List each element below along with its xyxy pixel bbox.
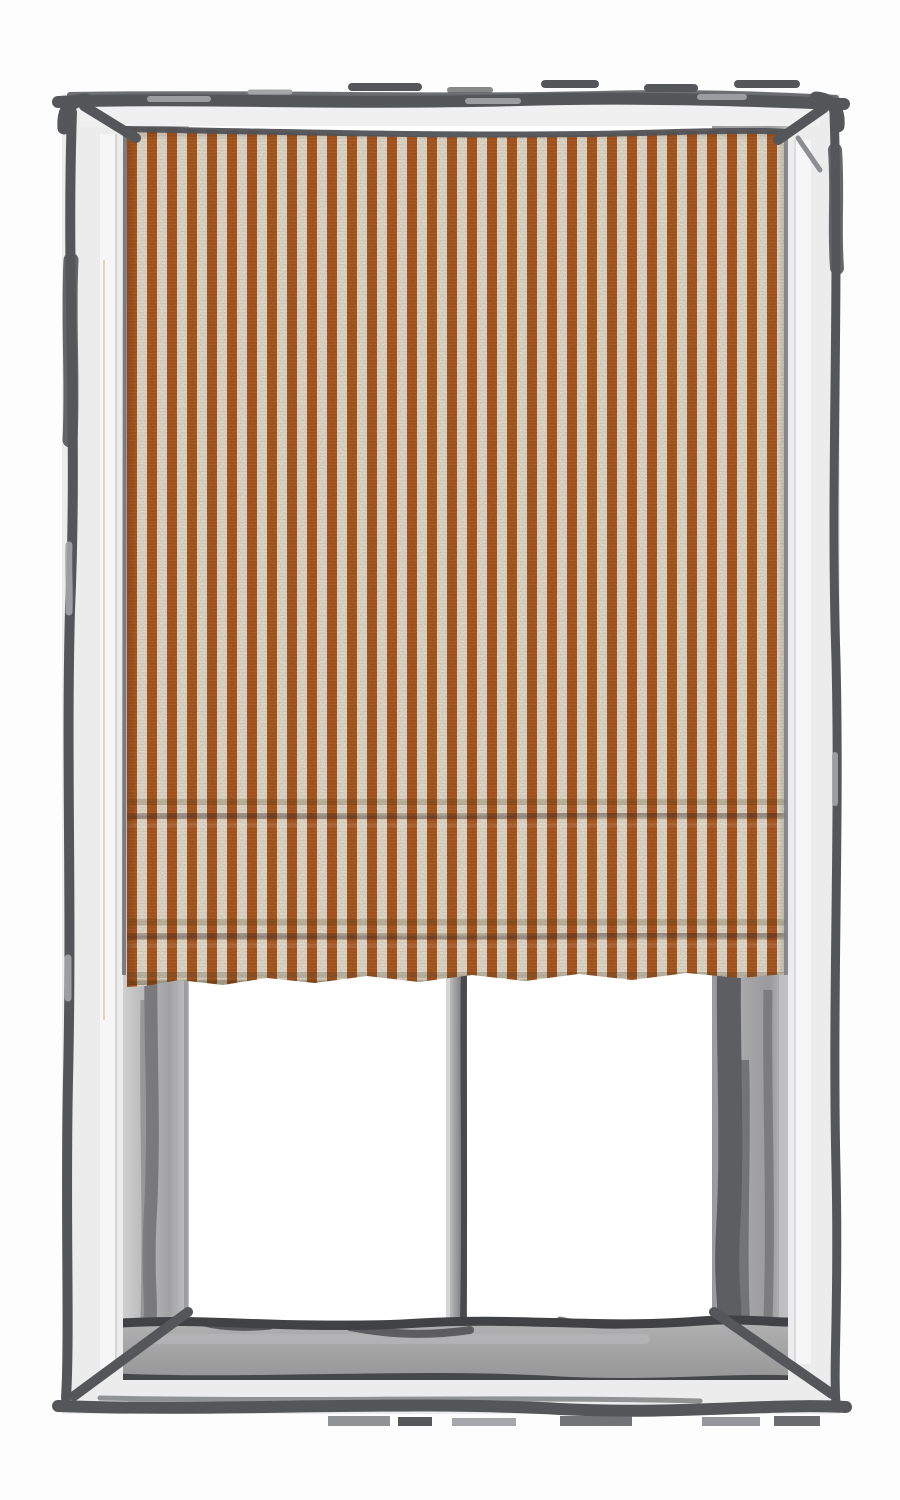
frame-outline [58, 93, 846, 1411]
corner-bevels [74, 106, 832, 1396]
window-frame-layer [0, 0, 900, 1500]
illustration-window-roman-shade [0, 0, 900, 1500]
frame-face [62, 94, 840, 1414]
frame-face-details [80, 104, 820, 1368]
sketch-marks [250, 84, 820, 1426]
